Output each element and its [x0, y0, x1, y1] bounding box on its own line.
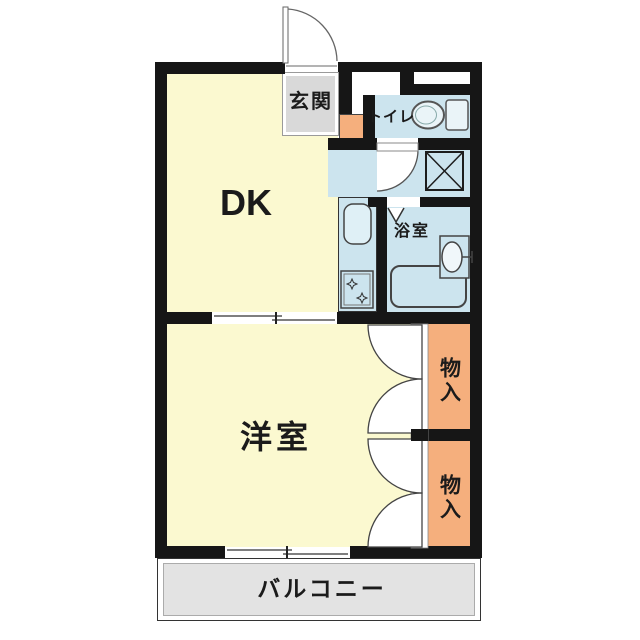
wall-post-b: [400, 72, 414, 95]
wall-washroom-bottom-b: [420, 197, 482, 207]
label-balcony: バルコニー: [257, 578, 387, 601]
label-dk: DK: [220, 185, 272, 221]
wall-mid-left: [155, 312, 212, 324]
label-toilet: トイレ: [367, 110, 415, 125]
label-western-room: 洋室: [240, 421, 312, 453]
wall-mid-right: [337, 312, 482, 324]
room-washroom: [328, 150, 470, 197]
wall-under-window-b: [414, 84, 470, 95]
wall-toilet-bottom-left: [328, 138, 377, 150]
wall-bottom-left: [155, 546, 225, 558]
wall-top-right: [338, 62, 482, 72]
wall-washroom-bottom-a: [368, 197, 377, 207]
entrance-door-icon: [283, 7, 337, 66]
wall-top-left: [155, 62, 285, 74]
wall-right: [470, 62, 482, 558]
floor-plan: 玄関 トイレ 浴室 DK 洋室 物入 物入 バルコニー: [0, 0, 640, 640]
label-entrance: 玄関: [289, 92, 333, 112]
label-storage-lower: 物入: [439, 474, 460, 522]
wall-bottom-right: [350, 546, 482, 558]
kitchen-counter: [338, 197, 377, 312]
sliding-door-icon: [214, 312, 335, 324]
label-bathroom: 浴室: [394, 224, 430, 240]
entrance-hall-step: [339, 114, 365, 139]
wall-storage-divider: [411, 429, 470, 441]
sliding-window-icon: [227, 546, 348, 558]
label-storage-upper: 物入: [439, 357, 460, 405]
wall-kitchen-bath: [377, 197, 387, 312]
wall-toilet-bottom-right: [418, 138, 482, 150]
wall-post-a: [339, 72, 352, 114]
wall-left: [155, 62, 167, 558]
